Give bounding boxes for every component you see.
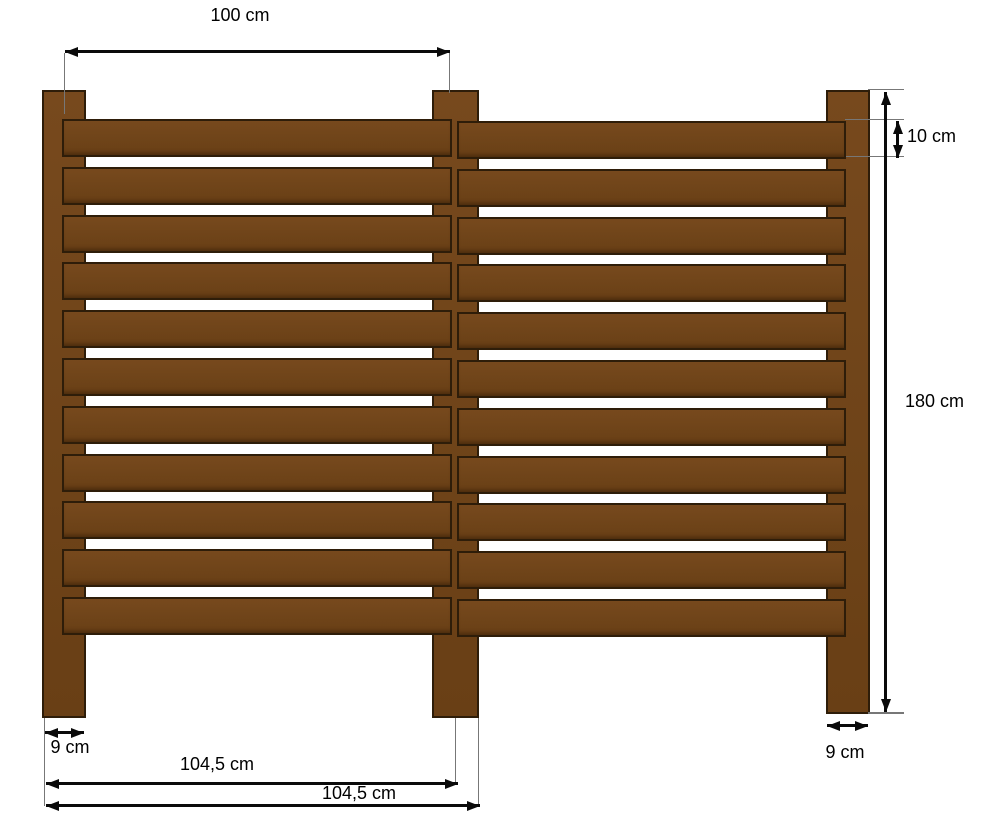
- dimension-arrow-span: [65, 50, 450, 53]
- extension-line-board-top: [845, 119, 904, 120]
- dimension-label-span: 100 cm: [190, 6, 290, 26]
- dimension-label-board-height: 10 cm: [907, 127, 956, 147]
- dimension-label-total-height: 180 cm: [905, 392, 964, 412]
- extension-line-height-top: [868, 89, 904, 90]
- dimension-arrow-board-height: [896, 121, 899, 158]
- dimension-label-panel2: 104,5 cm: [299, 784, 419, 804]
- dimension-label-post-left: 9 cm: [40, 738, 100, 758]
- extension-line-span-left: [64, 53, 65, 114]
- dimension-label-post-right: 9 cm: [815, 743, 875, 763]
- dimension-label-panel1: 104,5 cm: [157, 755, 277, 775]
- extension-line-span-right: [449, 53, 450, 93]
- extension-line-panel1: [455, 718, 456, 784]
- dimension-arrow-panel2: [46, 804, 480, 807]
- dimension-arrow-total-height: [884, 92, 887, 712]
- extension-line-panel2: [478, 718, 479, 806]
- fence-diagram: 100 cm 10 cm 180 cm 9 cm 9 cm 104,5 cm 1…: [0, 0, 988, 814]
- dimensions-layer: 100 cm 10 cm 180 cm 9 cm 9 cm 104,5 cm 1…: [0, 0, 988, 814]
- dimension-arrow-post-right: [827, 724, 868, 727]
- dimension-arrow-post-left: [45, 731, 84, 734]
- extension-line-height-bottom: [868, 712, 904, 714]
